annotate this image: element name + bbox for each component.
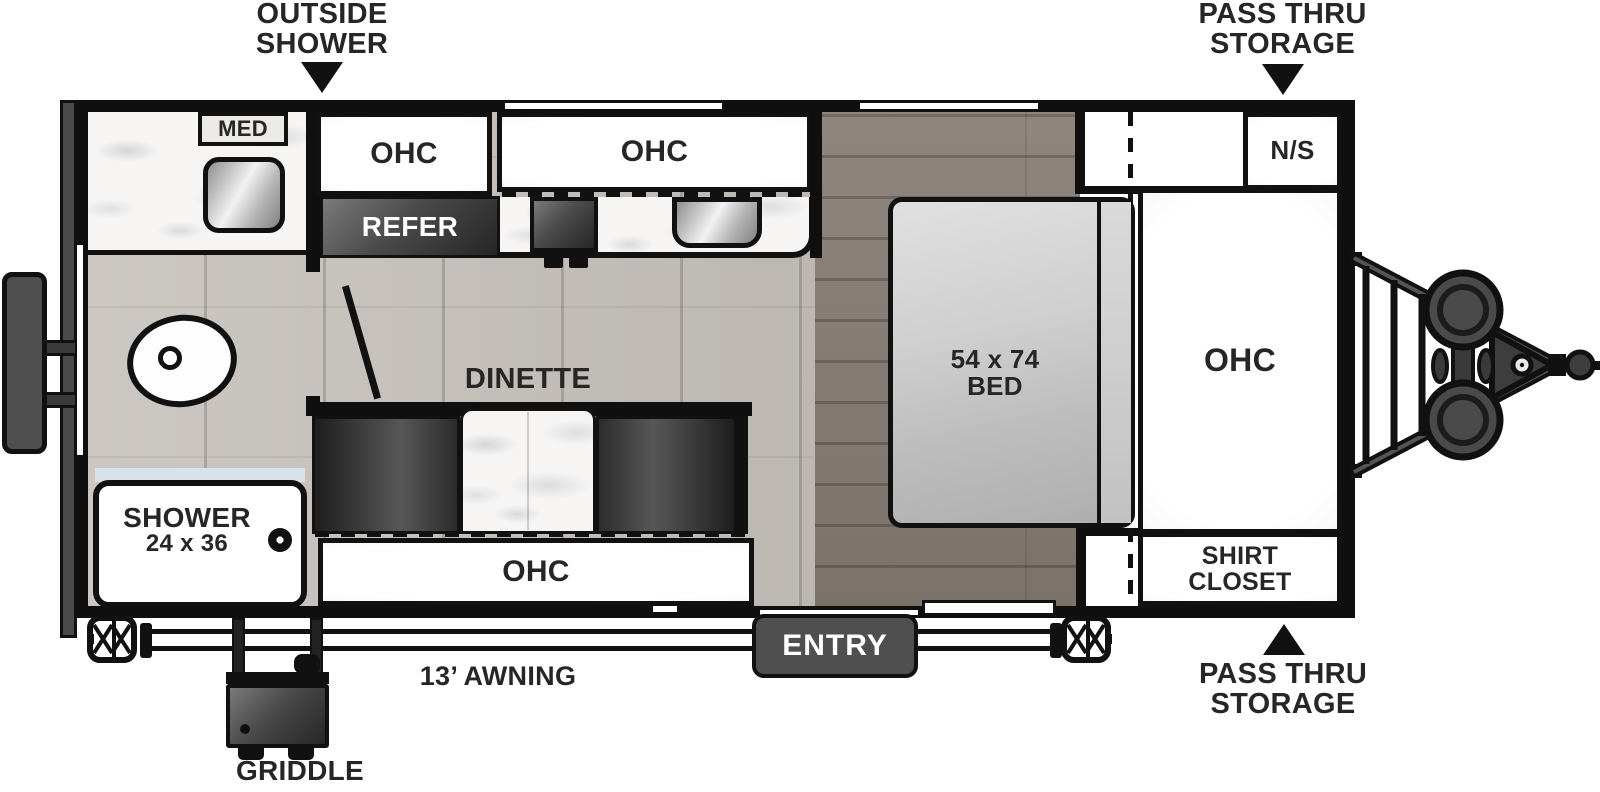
griddle-label-group: GRIDDLE bbox=[210, 756, 390, 786]
shirt-closet: SHIRT CLOSET bbox=[1138, 532, 1342, 606]
medicine-cabinet: MED bbox=[198, 112, 288, 146]
rv-floorplan-canvas: MED SHOWER 24 x 36 OHC OHC REFER DINETTE… bbox=[0, 0, 1600, 792]
dinette-ohc-label: OHC bbox=[502, 556, 570, 587]
outside-shower-arrow-icon bbox=[301, 62, 343, 93]
cooktop-knob bbox=[544, 256, 563, 268]
shower-drain-icon bbox=[268, 528, 292, 552]
griddle-body bbox=[226, 684, 329, 748]
pass-thru-top-arrow-icon bbox=[1262, 64, 1304, 95]
cooktop-knob bbox=[569, 256, 588, 268]
dinette-ohc: OHC bbox=[318, 538, 754, 606]
refrigerator: REFER bbox=[320, 196, 500, 258]
nightstand-label: N/S bbox=[1270, 137, 1314, 164]
outside-shower-callout: OUTSIDE SHOWER bbox=[237, 0, 407, 58]
outside-shower-label-2: SHOWER bbox=[256, 29, 388, 59]
trailer-hitch-icon bbox=[1350, 230, 1600, 500]
hitch-assembly bbox=[1350, 230, 1600, 500]
griddle-arm bbox=[232, 618, 245, 680]
kitchen-ohc-small: OHC bbox=[316, 112, 492, 196]
medicine-cabinet-label: MED bbox=[218, 118, 268, 141]
pass-thru-bottom-arrow-icon bbox=[1263, 624, 1305, 655]
griddle-knob-dot bbox=[240, 724, 250, 734]
shower-label-group: SHOWER 24 x 36 bbox=[98, 498, 276, 562]
stabilizer-jack-left bbox=[86, 615, 138, 663]
kitchen-ohc-small-label: OHC bbox=[370, 138, 438, 169]
outside-shower-label-1: OUTSIDE bbox=[257, 0, 388, 29]
awning-end-cap-left bbox=[140, 623, 152, 658]
scissor-jack-icon bbox=[86, 615, 138, 663]
dinette-bench-right bbox=[596, 416, 748, 534]
kitchen-ohc-wide: OHC bbox=[497, 112, 812, 192]
shirt-closet-label-2: CLOSET bbox=[1188, 569, 1291, 595]
stabilizer-jack-right bbox=[1060, 615, 1112, 663]
rear-rack-arm bbox=[44, 340, 78, 356]
bathroom-sink bbox=[203, 157, 285, 233]
entry-door-badge: ENTRY bbox=[752, 614, 918, 678]
pass-thru-top-label-2: STORAGE bbox=[1210, 29, 1355, 59]
shower-label: SHOWER bbox=[123, 503, 251, 532]
dinette-label-group: DINETTE bbox=[448, 364, 608, 394]
window-top-kitchen bbox=[505, 103, 722, 109]
bedroom-ohc-label: OHC bbox=[1204, 344, 1276, 377]
kitchen-ohc-dash-line bbox=[320, 192, 812, 197]
shower-size-label: 24 x 36 bbox=[146, 532, 228, 557]
bed-size-label: 54 x 74 bbox=[951, 346, 1040, 373]
nightstand: N/S bbox=[1243, 112, 1342, 190]
bed-side-strip bbox=[1101, 202, 1131, 523]
dinette-bench-left bbox=[312, 416, 460, 534]
refrigerator-label: REFER bbox=[362, 212, 458, 241]
pass-thru-top-callout: PASS THRU STORAGE bbox=[1190, 0, 1375, 58]
entry-door-opening bbox=[922, 600, 1056, 616]
awning-label-group: 13’ AWNING bbox=[408, 662, 588, 690]
bed-label-group: 54 x 74 BED bbox=[900, 342, 1090, 404]
entry-label: ENTRY bbox=[782, 630, 888, 661]
griddle-crossbar bbox=[226, 672, 329, 684]
platform-edge-upper bbox=[1075, 112, 1085, 194]
griddle-latch bbox=[294, 654, 320, 674]
dinette-label: DINETTE bbox=[465, 364, 591, 394]
griddle-label: GRIDDLE bbox=[236, 756, 364, 785]
shirt-closet-label-1: SHIRT bbox=[1202, 543, 1279, 569]
kitchen-ohc-wide-label: OHC bbox=[621, 136, 689, 167]
pass-thru-bottom-label-2: STORAGE bbox=[1211, 689, 1356, 719]
rear-rack-panel bbox=[2, 272, 47, 454]
kitchen-sink bbox=[672, 197, 762, 248]
bed-name-label: BED bbox=[967, 373, 1023, 400]
pass-thru-bottom-callout: PASS THRU STORAGE bbox=[1188, 660, 1378, 718]
dinette-table-seam bbox=[527, 412, 529, 530]
cooktop bbox=[530, 197, 598, 252]
pass-thru-top-label-1: PASS THRU bbox=[1198, 0, 1366, 29]
toilet-flush-button bbox=[158, 346, 182, 370]
pass-thru-bottom-label-1: PASS THRU bbox=[1199, 659, 1367, 689]
window-left-wall bbox=[77, 245, 83, 455]
bedroom-ohc: OHC bbox=[1138, 188, 1342, 534]
awning-label: 13’ AWNING bbox=[420, 662, 577, 690]
scissor-jack-icon bbox=[1060, 615, 1112, 663]
window-top-bedroom bbox=[860, 103, 1038, 109]
dinette-ohc-dash-line bbox=[315, 532, 751, 537]
platform-edge-lower bbox=[1076, 528, 1086, 606]
rear-rack-arm bbox=[44, 392, 78, 408]
kitchen-bed-divider-wall bbox=[810, 112, 822, 258]
